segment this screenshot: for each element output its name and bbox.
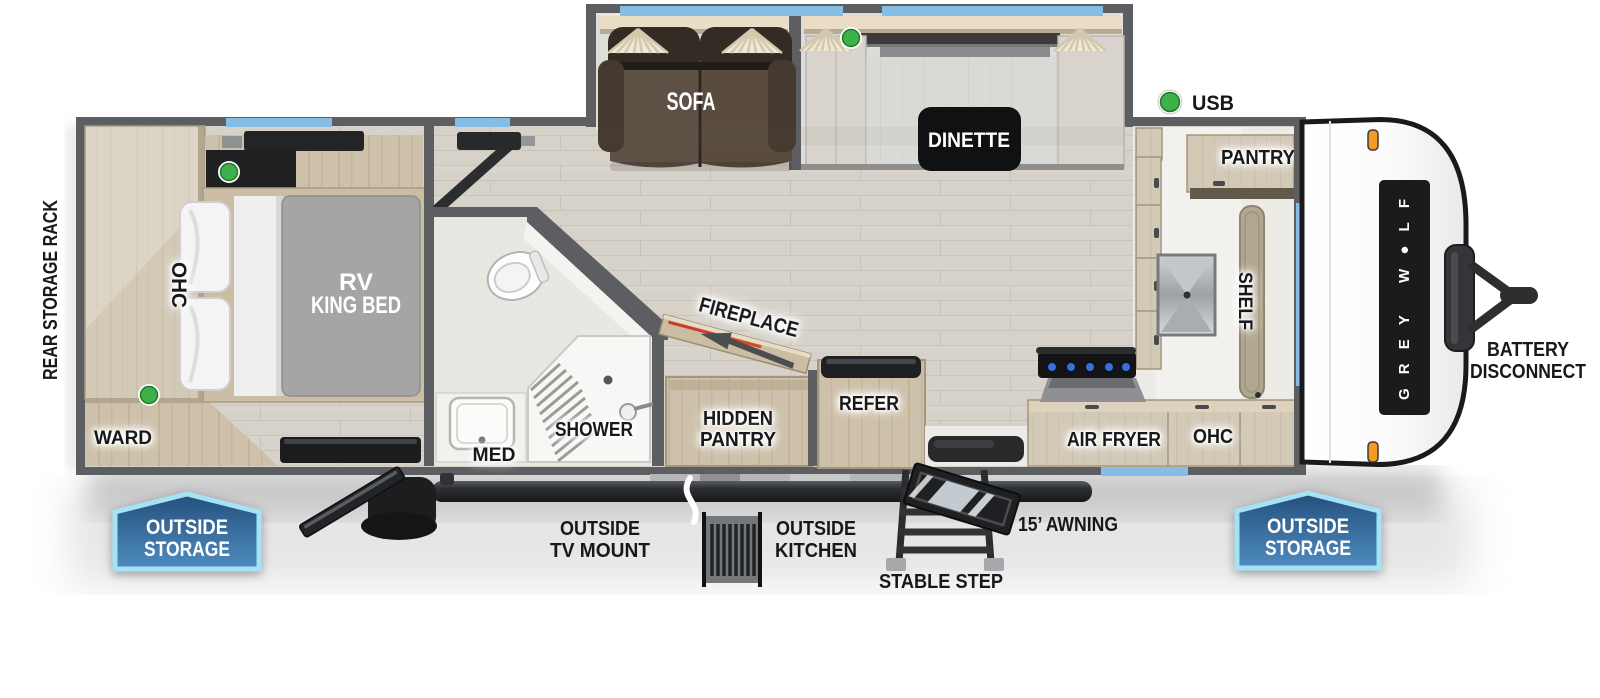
svg-text:OHC: OHC [167,262,190,308]
svg-text:15’ AWNING: 15’ AWNING [1018,514,1118,536]
svg-text:SHOWER: SHOWER [555,419,633,441]
svg-text:AIR FRYER: AIR FRYER [1067,429,1161,451]
svg-text:PANTRY: PANTRY [1221,147,1296,169]
svg-text:KING BED: KING BED [311,292,401,319]
svg-text:OUTSIDE: OUTSIDE [776,518,856,540]
svg-text:SOFA: SOFA [667,88,716,116]
svg-text:OHC: OHC [1193,426,1233,448]
svg-text:TV MOUNT: TV MOUNT [550,540,650,562]
svg-text:SHELF: SHELF [1234,272,1255,330]
svg-text:REFER: REFER [839,393,899,415]
svg-text:OUTSIDE: OUTSIDE [1267,515,1349,538]
svg-text:OUTSIDE: OUTSIDE [560,518,640,540]
svg-text:DINETTE: DINETTE [928,129,1010,152]
svg-text:DISCONNECT: DISCONNECT [1470,361,1586,383]
svg-text:STORAGE: STORAGE [144,538,230,561]
svg-text:STABLE STEP: STABLE STEP [879,571,1003,593]
svg-text:KITCHEN: KITCHEN [775,540,857,562]
svg-text:BATTERY: BATTERY [1487,339,1570,361]
svg-text:HIDDEN: HIDDEN [703,408,773,430]
svg-text:USB: USB [1192,92,1234,115]
svg-text:WARD: WARD [94,428,152,449]
svg-text:PANTRY: PANTRY [700,429,777,451]
svg-text:GREY W●LF: GREY W●LF [1396,195,1413,400]
svg-text:OUTSIDE: OUTSIDE [146,516,228,539]
svg-text:REAR STORAGE RACK: REAR STORAGE RACK [40,200,62,380]
svg-text:MED: MED [473,445,516,466]
svg-text:STORAGE: STORAGE [1265,537,1351,560]
